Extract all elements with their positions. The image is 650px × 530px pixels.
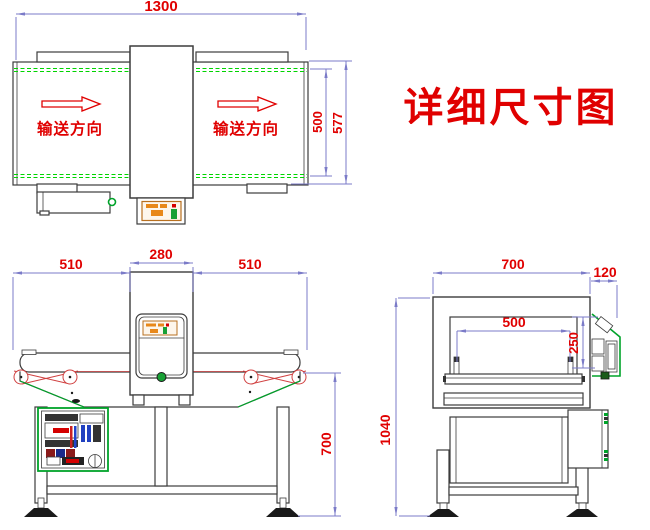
run-lamp-icon <box>163 327 167 334</box>
display-segment <box>151 210 163 216</box>
detector-head-front <box>130 272 193 405</box>
guide-rail-top-left <box>37 52 130 62</box>
control-panel-plan <box>137 198 185 224</box>
wire-duct <box>81 425 85 442</box>
belt-band-side <box>445 374 582 384</box>
dim-500-belt: 500 <box>310 69 332 176</box>
belt-lip-right <box>284 350 298 355</box>
dim-120: 120 <box>591 264 617 318</box>
vent-slot <box>72 399 80 403</box>
dim-body-width-label: 700 <box>501 256 525 272</box>
dim-700-front: 700 <box>298 373 341 516</box>
dim-aperture-width-label: 500 <box>502 314 526 330</box>
body-box-side <box>450 417 568 483</box>
center-support <box>155 407 167 486</box>
motor-coupling-icon <box>109 199 116 206</box>
dim-detector-label: 280 <box>149 246 173 262</box>
dim-belt-width-label: 500 <box>310 111 325 133</box>
flow-direction-label-right: 输送方向 <box>213 119 279 138</box>
head-foot-right <box>179 395 190 405</box>
belt-lip-left <box>22 350 36 355</box>
dim-1040: 1040 <box>377 298 430 516</box>
dim-belt-height-label: 700 <box>318 432 334 456</box>
breaker <box>66 449 75 458</box>
adjustable-foot-right <box>266 508 300 517</box>
run-lamp-icon <box>171 209 177 219</box>
detector-head-plan <box>130 46 193 198</box>
display-segment <box>160 204 167 208</box>
cross-brace <box>47 486 277 494</box>
dim-outfeed-label: 510 <box>238 256 262 272</box>
side-control-panel <box>592 314 620 379</box>
drive-motor-side <box>568 410 608 468</box>
adjustable-foot <box>566 509 598 517</box>
side-view: 700 120 500 250 1040 <box>377 256 620 517</box>
flow-direction-label-left: 输送方向 <box>37 119 103 138</box>
foot-stem <box>579 503 586 510</box>
adjustable-foot <box>427 509 459 517</box>
green-knob-icon <box>601 372 609 379</box>
dim-overall-length-label: 1300 <box>144 0 177 15</box>
dim-700-side: 700 <box>433 256 590 294</box>
wire-duct <box>87 425 91 442</box>
relay-block <box>93 425 101 442</box>
machine-leg-front <box>437 450 449 503</box>
socket <box>47 457 60 465</box>
screw-dot <box>249 391 251 393</box>
top-view: 输送方向 输送方向 1300 500 577 <box>13 0 352 224</box>
alarm-lamp-icon <box>166 324 169 327</box>
guide-rail-top-right <box>196 52 288 62</box>
screw-dot <box>71 392 73 394</box>
dim-total-height-label: 1040 <box>377 414 393 445</box>
wire <box>74 426 77 448</box>
dim-overall-width-label: 577 <box>330 112 345 134</box>
dimension-drawing-page: 输送方向 输送方向 1300 500 577 详细尺寸图 <box>0 0 650 530</box>
page-title: 详细尺寸图 <box>404 84 619 131</box>
green-knob-icon <box>157 373 166 382</box>
display-segment <box>146 204 158 208</box>
guide-rail-bottom-right <box>247 184 287 193</box>
dim-510-right: 510 <box>193 256 307 350</box>
foot-stem <box>280 498 286 508</box>
head-foot-left <box>133 395 144 405</box>
terminal-strip <box>45 440 78 447</box>
dim-infeed-label: 510 <box>59 256 83 272</box>
dim-510-left: 510 <box>13 256 130 350</box>
head-display-panel <box>143 321 177 335</box>
dim-panel-depth-label: 120 <box>593 264 617 280</box>
front-view: 510 280 510 700 <box>13 246 341 517</box>
dim-aperture-height-label: 250 <box>566 332 581 354</box>
control-cabinet <box>38 408 108 471</box>
terminal-strip <box>45 414 78 421</box>
terminal-block <box>80 414 103 423</box>
alarm-lamp-icon <box>172 204 176 208</box>
foot-stem <box>440 503 447 510</box>
foot-stem <box>38 498 44 508</box>
cross-brace-side <box>449 487 578 495</box>
machine-leg-right <box>277 407 289 503</box>
frame-green-edge <box>238 381 300 407</box>
panel-bracket <box>592 339 604 354</box>
drive-motor <box>37 192 116 215</box>
frame-green-edge <box>20 381 84 407</box>
adjustable-foot-left <box>24 508 58 517</box>
wire <box>70 426 73 448</box>
table-band-side <box>444 393 583 405</box>
panel-bracket <box>592 356 604 371</box>
technical-drawing: 输送方向 输送方向 1300 500 577 详细尺寸图 <box>0 0 650 530</box>
